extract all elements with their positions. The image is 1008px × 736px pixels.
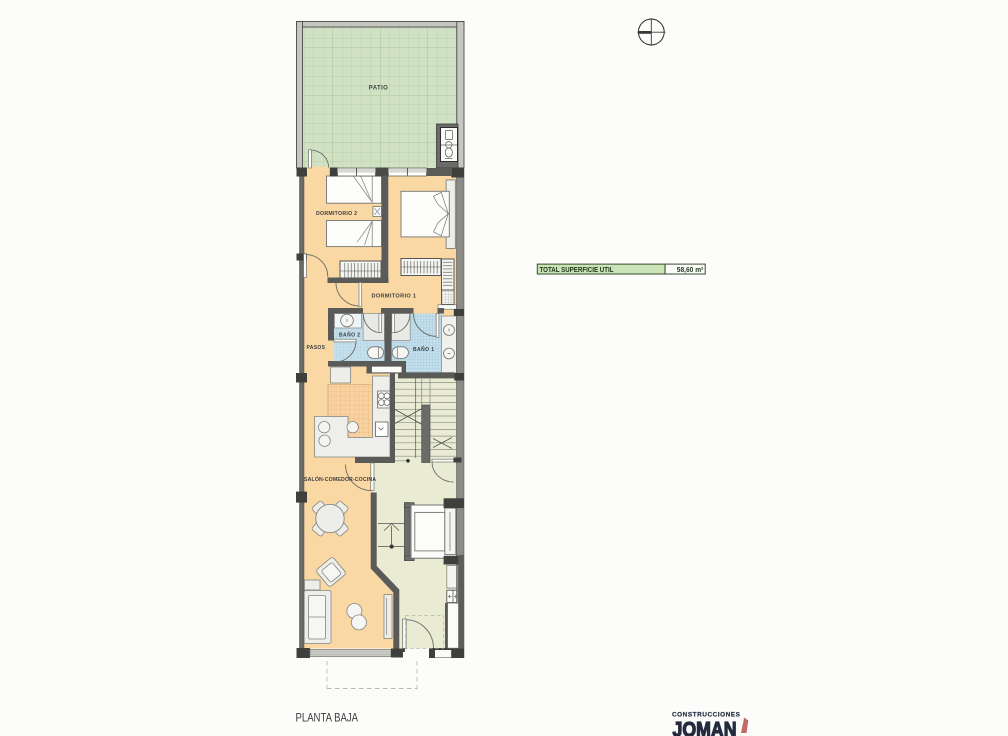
svg-text:TOTAL SUPERFICIE UTIL: TOTAL SUPERFICIE UTIL [540,265,614,274]
svg-text:DORMITORIO 1: DORMITORIO 1 [372,293,417,299]
svg-text:58,60 m²: 58,60 m² [677,265,704,274]
svg-text:BAÑO 1: BAÑO 1 [413,346,434,353]
svg-text:PATIO: PATIO [369,86,388,92]
svg-text:PLANTA BAJA: PLANTA BAJA [296,711,359,725]
svg-text:PASOS: PASOS [307,345,326,351]
svg-text:BAÑO 2: BAÑO 2 [339,331,360,338]
svg-text:SALÓN-COMEDOR-COCINA: SALÓN-COMEDOR-COCINA [304,475,376,483]
svg-text:JOMAN: JOMAN [673,718,737,736]
svg-text:DORMITORIO 2: DORMITORIO 2 [316,211,357,217]
